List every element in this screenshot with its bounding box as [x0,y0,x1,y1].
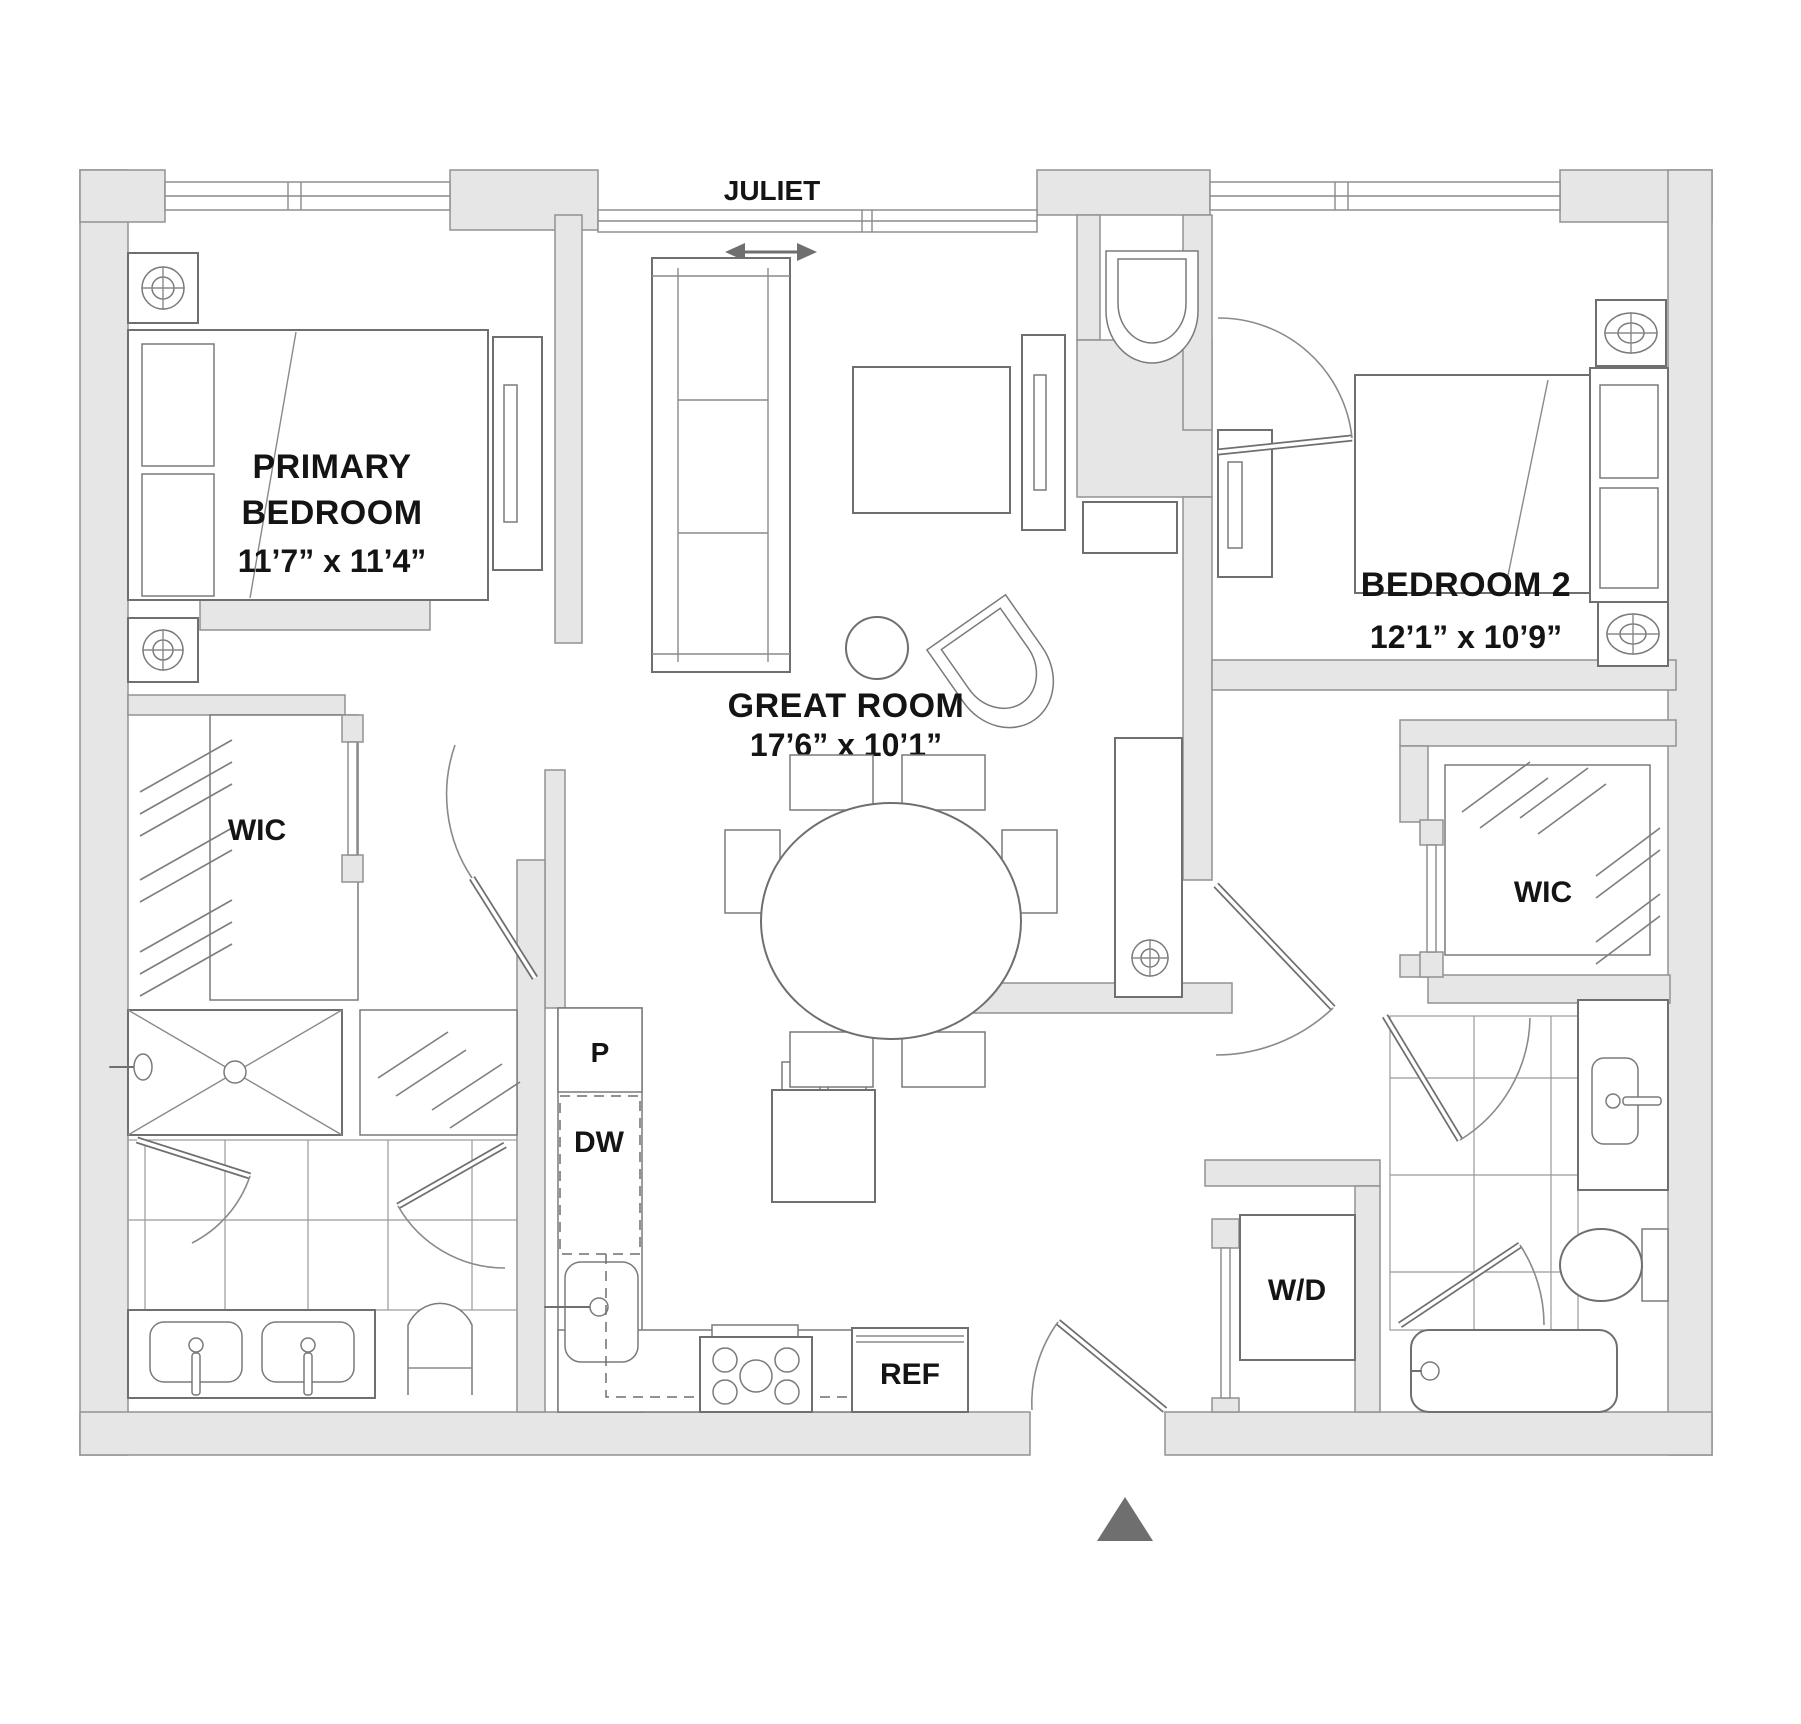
accent-chair-nook [1106,251,1198,363]
linen-closet-hatch [360,1010,520,1135]
great-room-label: GREAT ROOM [728,687,965,725]
primary-bedroom-dimensions: 11’7” x 11’4” [238,543,427,579]
dining-set [725,755,1057,1087]
refrigerator: REF [852,1328,968,1412]
door-bathroom-entry [398,1145,505,1268]
primary-bedroom-label-line2: BEDROOM [241,494,422,532]
shower [110,1010,342,1135]
coffee-table [853,367,1010,513]
pantry-label: P [591,1037,610,1068]
bathroom-floor-tile [128,1140,517,1310]
window-bedroom-2 [1210,182,1560,210]
refrigerator-label: REF [880,1358,940,1391]
floor-plan-drawing: PRIMARY BEDROOM 11’7” x 11’4” WIC [0,0,1801,1724]
door-tub [1400,1245,1544,1325]
door-hall-to-bath-hall [1216,885,1333,1055]
juliet-label: JULIET [724,175,820,206]
nightstand [128,618,198,682]
bedroom-2-dimensions: 12’1” x 10’9” [1370,619,1562,655]
nightstand [1598,602,1668,666]
wic-right-label: WIC [1514,876,1572,909]
bathroom-2 [1385,1000,1668,1412]
toilet [1560,1229,1668,1301]
bedroom-2-label: BEDROOM 2 [1361,566,1571,604]
sofa [652,258,790,672]
hall-cabinet [1115,738,1182,997]
console-bench [1083,502,1177,553]
washer-dryer-closet: W/D [1212,1215,1355,1412]
tv-console [1022,335,1065,530]
wic-left-label: WIC [228,814,286,847]
bathtub [1411,1330,1617,1412]
door-washer-dryer [1212,1219,1239,1412]
vanity-sink [1578,1000,1668,1190]
dining-table [761,803,1021,1039]
dishwasher-label: DW [574,1126,625,1159]
juliet-balcony-door [598,210,1037,261]
primary-bedroom-label-line1: PRIMARY [252,448,411,486]
round-side-table [846,617,908,679]
door-bathroom-shower [137,1140,250,1243]
floor-plan-page: PRIMARY BEDROOM 11’7” x 11’4” WIC [0,0,1801,1724]
washer-dryer-label: W/D [1268,1274,1326,1307]
walk-in-closet-right: WIC [1420,762,1660,977]
north-arrow-icon [1097,1497,1153,1541]
pantry-cabinet: P [558,1008,642,1092]
nightstand [1596,300,1666,366]
entry-door [1032,1322,1165,1410]
double-vanity [128,1310,375,1398]
dresser [493,337,542,570]
bedroom-2: BEDROOM 2 12’1” x 10’9” [1218,300,1668,666]
door-wic-right [1420,820,1443,977]
stove [700,1325,812,1412]
nightstand [128,253,198,323]
window-primary-bedroom [165,182,450,210]
toilet [408,1303,472,1395]
